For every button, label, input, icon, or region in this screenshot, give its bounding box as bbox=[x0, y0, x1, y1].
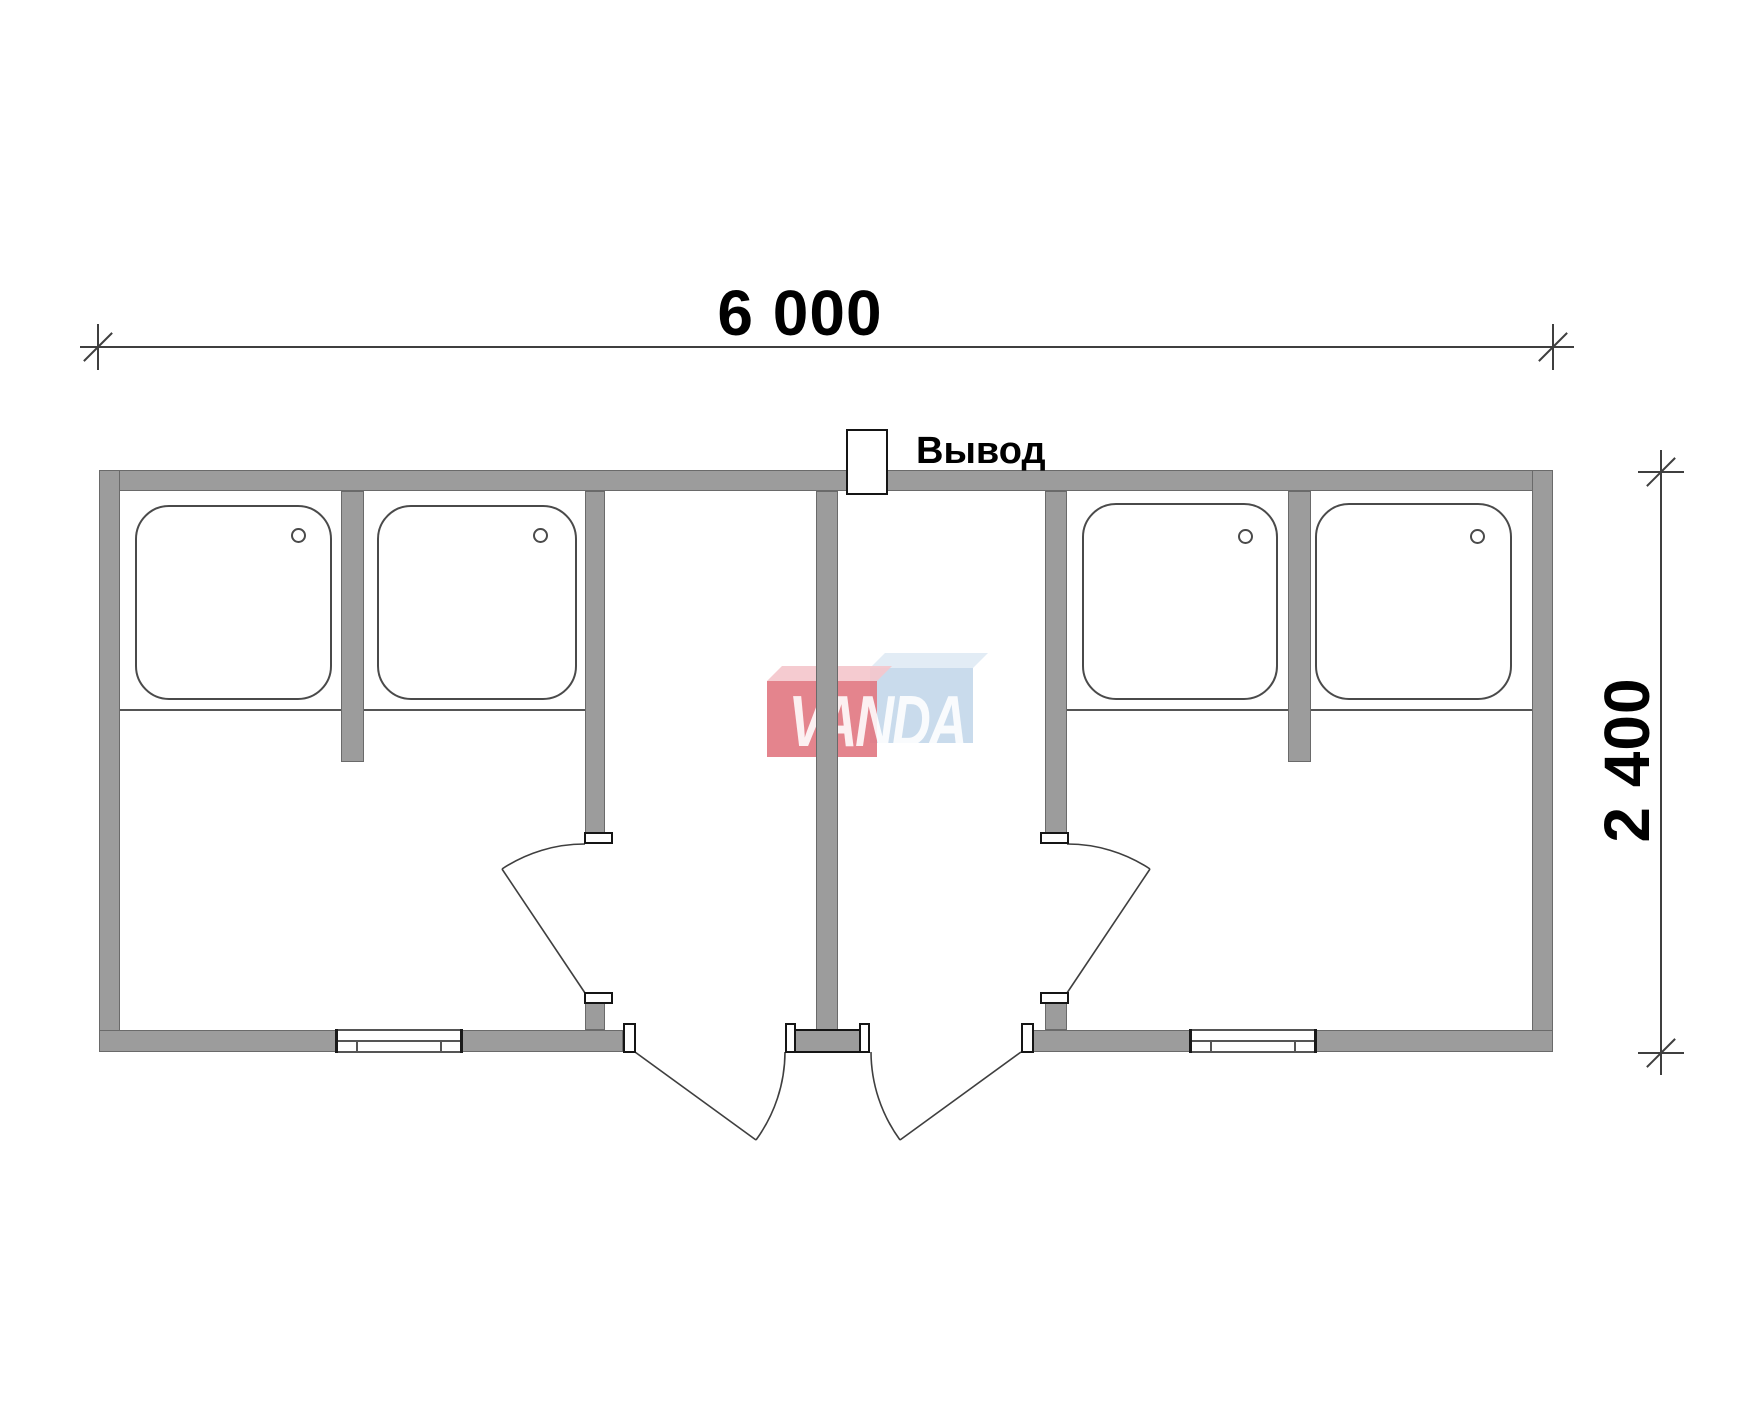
wall-center-t-piece bbox=[794, 1029, 861, 1053]
door-swings-layer bbox=[0, 0, 1763, 1413]
window-right-mullion-2 bbox=[1294, 1040, 1296, 1051]
entrance-door-right-arc bbox=[871, 1052, 900, 1140]
window-left-mullion-1 bbox=[356, 1040, 358, 1051]
wall-bottom-segment-1 bbox=[99, 1030, 338, 1052]
jamb-interior-right-top bbox=[1040, 832, 1069, 844]
outlet-label: Вывод bbox=[916, 430, 1046, 473]
entrance-door-left-leaf bbox=[635, 1052, 756, 1140]
jamb-interior-right-bottom bbox=[1040, 992, 1069, 1004]
wall-end-cap bbox=[460, 1029, 463, 1053]
jamb-entrance-right-outer bbox=[1021, 1023, 1034, 1053]
outlet-box bbox=[846, 429, 888, 495]
entrance-door-right-leaf bbox=[900, 1052, 1021, 1140]
interior-door-left-leaf bbox=[502, 869, 585, 993]
jamb-entrance-right-inner bbox=[859, 1023, 870, 1053]
interior-door-right-leaf bbox=[1067, 869, 1150, 993]
wall-left bbox=[99, 470, 120, 1052]
interior-door-left-arc bbox=[502, 844, 585, 869]
window-left bbox=[338, 1029, 460, 1053]
jamb-interior-left-top bbox=[584, 832, 613, 844]
wall-vestibule-left bbox=[585, 491, 605, 833]
entrance-door-left-arc bbox=[756, 1052, 785, 1140]
window-left-mullion-2 bbox=[440, 1040, 442, 1051]
wall-vestibule-right-stub bbox=[1045, 1003, 1067, 1030]
wall-vestibule-right bbox=[1045, 491, 1067, 833]
wall-bottom-segment-3 bbox=[1033, 1030, 1192, 1052]
jamb-entrance-left-outer bbox=[623, 1023, 636, 1053]
stall-divider-right bbox=[1288, 491, 1311, 762]
window-right-mullion-1 bbox=[1210, 1040, 1212, 1051]
wall-end-cap bbox=[1189, 1029, 1192, 1053]
wall-vestibule-left-stub bbox=[585, 1003, 605, 1030]
stall-divider-left bbox=[341, 491, 364, 762]
wall-end-cap bbox=[1314, 1029, 1317, 1053]
wall-right bbox=[1532, 470, 1553, 1052]
dimension-depth-label: 2 400 bbox=[1590, 677, 1664, 842]
floor-plan-canvas: VANDA bbox=[0, 0, 1763, 1413]
dimension-width-label: 6 000 bbox=[717, 276, 882, 350]
window-right bbox=[1192, 1029, 1314, 1053]
interior-door-right-arc bbox=[1067, 844, 1150, 869]
wall-center-partition bbox=[816, 491, 838, 1030]
wall-end-cap bbox=[335, 1029, 338, 1053]
wall-bottom-segment-2 bbox=[460, 1030, 623, 1052]
wall-top bbox=[99, 470, 1553, 491]
wall-bottom-segment-4 bbox=[1314, 1030, 1553, 1052]
jamb-interior-left-bottom bbox=[584, 992, 613, 1004]
jamb-entrance-left-inner bbox=[785, 1023, 796, 1053]
